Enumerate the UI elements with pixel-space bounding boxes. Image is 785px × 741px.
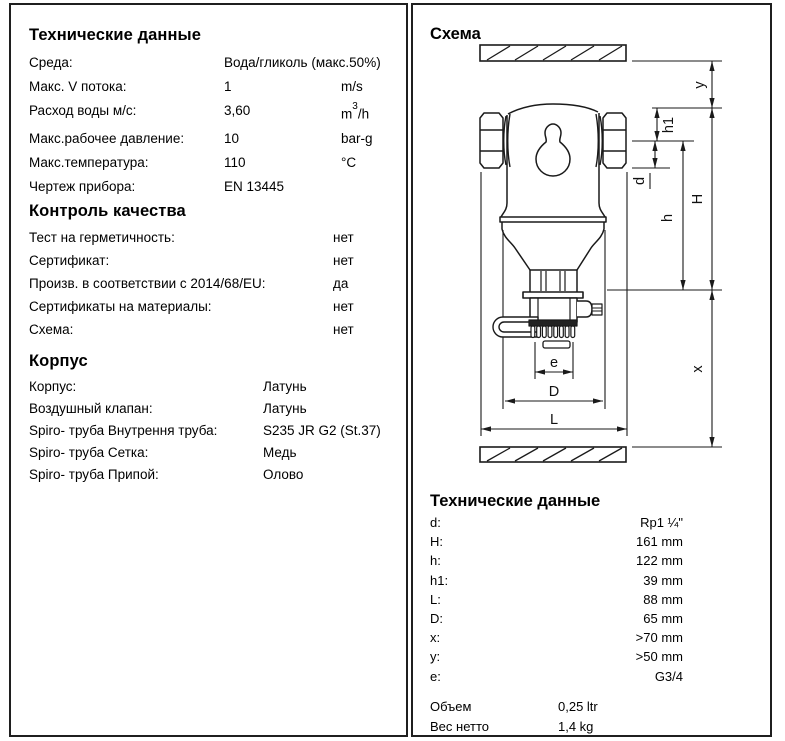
table-row: Spiro- труба Припой: Олово: [29, 464, 398, 486]
section-title-body: Корпус: [11, 352, 406, 371]
table-row: Схема: нет: [29, 318, 398, 341]
row-value: нет: [333, 295, 398, 318]
row-value: 10: [224, 127, 341, 151]
row-label: Среда:: [29, 51, 224, 75]
dim-label-L: L: [550, 412, 558, 428]
row-value: нет: [333, 226, 398, 249]
dim-value: 161 mm: [636, 532, 683, 551]
dim-label-x: x: [690, 365, 706, 373]
row-label: Воздушный клапан:: [29, 398, 263, 420]
table-row: Spiro- труба Внутрення труба: S235 JR G2…: [29, 420, 398, 442]
left-panel: Технические данные Среда: Вода/гликоль (…: [9, 3, 408, 737]
dim-label: e:: [430, 667, 441, 686]
table-row: Произв. в соответствии с 2014/68/EU: да: [29, 272, 398, 295]
table-row: Макс. V потока: 1 m/s: [29, 75, 398, 99]
row-unit: [341, 51, 398, 75]
technical-data-table: Среда: Вода/гликоль (макс.50%) Макс. V п…: [11, 51, 406, 199]
union-nut-right: [603, 113, 626, 168]
row-value: Латунь: [263, 376, 398, 398]
row-value: S235 JR G2 (St.37): [263, 420, 398, 442]
dim-value: >70 mm: [636, 628, 683, 647]
row-value: Латунь: [263, 398, 398, 420]
schematic-drawing: y h1 d h H x e D L: [411, 42, 772, 464]
keyhole-opening: [536, 124, 570, 176]
extension-lines: [481, 61, 722, 447]
volume-label: Объем: [430, 697, 558, 717]
row-value: нет: [333, 318, 398, 341]
volume-value: 0,25 ltr: [558, 697, 690, 717]
dim-value: 88 mm: [643, 590, 683, 609]
dim-label: d:: [430, 513, 441, 532]
dim-label: h1:: [430, 571, 448, 590]
list-item: h: 122 mm: [430, 551, 683, 570]
dim-label: H:: [430, 532, 443, 551]
row-value: Олово: [263, 464, 398, 486]
dim-value: 39 mm: [643, 571, 683, 590]
row-value: EN 13445: [224, 175, 341, 199]
body-materials-table: Корпус: Латунь Воздушный клапан: Латунь …: [11, 376, 406, 486]
row-value: 3,60: [224, 99, 341, 127]
table-row: Среда: Вода/гликоль (макс.50%): [29, 51, 398, 75]
row-label: Spiro- труба Припой:: [29, 464, 263, 486]
dim-label: y:: [430, 647, 440, 666]
row-value: Медь: [263, 442, 398, 464]
row-value: Вода/гликоль (макс.50%): [224, 51, 341, 75]
row-unit: [341, 175, 398, 199]
quality-control-table: Тест на герметичность: нет Сертификат: н…: [11, 226, 406, 341]
table-row: Чертеж прибора: EN 13445: [29, 175, 398, 199]
row-value: 1: [224, 75, 341, 99]
tech-dims-title: Технические данные: [430, 492, 600, 511]
row-value: 110: [224, 151, 341, 175]
dim-label-H: H: [690, 194, 706, 204]
threaded-nipple: [530, 270, 577, 292]
net-weight-value: 1,4 kg: [558, 717, 690, 737]
dim-label-d: d: [632, 177, 648, 185]
valve-spout: [577, 301, 602, 317]
dim-label-h1: h1: [661, 117, 677, 133]
table-row: Сертификат: нет: [29, 249, 398, 272]
section-title-technical-data: Технические данные: [11, 26, 406, 45]
table-row: Макс.температура: 110 °C: [29, 151, 398, 175]
dim-value: 122 mm: [636, 551, 683, 570]
row-unit: °C: [341, 151, 398, 175]
row-label: Чертеж прибора:: [29, 175, 224, 199]
dim-label-D: D: [549, 384, 559, 400]
table-row: Корпус: Латунь: [29, 376, 398, 398]
dim-label-e: e: [550, 355, 558, 371]
row-unit: bar-g: [341, 127, 398, 151]
chamber-taper-right: [577, 222, 604, 270]
dim-label: h:: [430, 551, 441, 570]
dim-label-y: y: [692, 81, 708, 89]
list-item: d: Rp1 ¼": [430, 513, 683, 532]
union-nut-left: [480, 113, 503, 168]
table-row: Тест на герметичность: нет: [29, 226, 398, 249]
datasheet-page: Технические данные Среда: Вода/гликоль (…: [0, 0, 785, 741]
row-label: Макс.температура:: [29, 151, 224, 175]
dim-label: x:: [430, 628, 440, 647]
dim-label: L:: [430, 590, 441, 609]
list-item: x: >70 mm: [430, 628, 683, 647]
row-label: Spiro- труба Сетка:: [29, 442, 263, 464]
table-row: Spiro- труба Сетка: Медь: [29, 442, 398, 464]
row-unit: m/s: [341, 75, 398, 99]
dim-value: >50 mm: [636, 647, 683, 666]
row-label: Тест на герметичность:: [29, 226, 333, 249]
weld-flange: [500, 217, 606, 222]
dim-value: G3/4: [655, 667, 683, 686]
row-label: Корпус:: [29, 376, 263, 398]
row-label: Макс. V потока:: [29, 75, 224, 99]
knurled-ring: [529, 320, 577, 338]
net-weight-label: Вес нетто: [430, 717, 558, 737]
list-item: D: 65 mm: [430, 609, 683, 628]
row-value: нет: [333, 249, 398, 272]
dim-value: 65 mm: [643, 609, 683, 628]
list-item: Вес нетто 1,4 kg: [430, 717, 690, 737]
valve-bottom-cap: [543, 341, 570, 348]
floor-hatch-bar: [480, 447, 626, 462]
row-label: Spiro- труба Внутрення труба:: [29, 420, 263, 442]
dim-label-h: h: [660, 214, 676, 222]
row-unit: m3/h: [341, 99, 398, 127]
row-label: Схема:: [29, 318, 333, 341]
chamber-taper-left: [502, 222, 530, 270]
list-item: L: 88 mm: [430, 590, 683, 609]
row-label: Расход воды м/с:: [29, 99, 224, 127]
row-value: да: [333, 272, 398, 295]
dimension-arrows: [481, 61, 715, 447]
list-item: H: 161 mm: [430, 532, 683, 551]
list-item: y: >50 mm: [430, 647, 683, 666]
list-item: h1: 39 mm: [430, 571, 683, 590]
dimension-list: d: Rp1 ¼" H: 161 mm h: 122 mm h1: 39 mm …: [430, 513, 683, 686]
table-row: Расход воды м/с: 3,60 m3/h: [29, 99, 398, 127]
list-item: Объем 0,25 ltr: [430, 697, 690, 717]
dim-value: Rp1 ¼": [640, 513, 683, 532]
drain-valve: [493, 292, 602, 348]
table-row: Воздушный клапан: Латунь: [29, 398, 398, 420]
table-row: Сертификаты на материалы: нет: [29, 295, 398, 318]
ceiling-hatch-bar: [480, 45, 626, 61]
section-title-quality-control: Контроль качества: [11, 202, 406, 221]
row-label: Макс.рабочее давление:: [29, 127, 224, 151]
list-item: e: G3/4: [430, 667, 683, 686]
body-top: [508, 104, 598, 114]
table-row: Макс.рабочее давление: 10 bar-g: [29, 127, 398, 151]
dim-label: D:: [430, 609, 443, 628]
volume-weight-list: Объем 0,25 ltr Вес нетто 1,4 kg: [430, 697, 690, 736]
row-label: Сертификат:: [29, 249, 333, 272]
row-label: Произв. в соответствии с 2014/68/EU:: [29, 272, 333, 295]
row-label: Сертификаты на материалы:: [29, 295, 333, 318]
separator-device: [480, 104, 626, 348]
